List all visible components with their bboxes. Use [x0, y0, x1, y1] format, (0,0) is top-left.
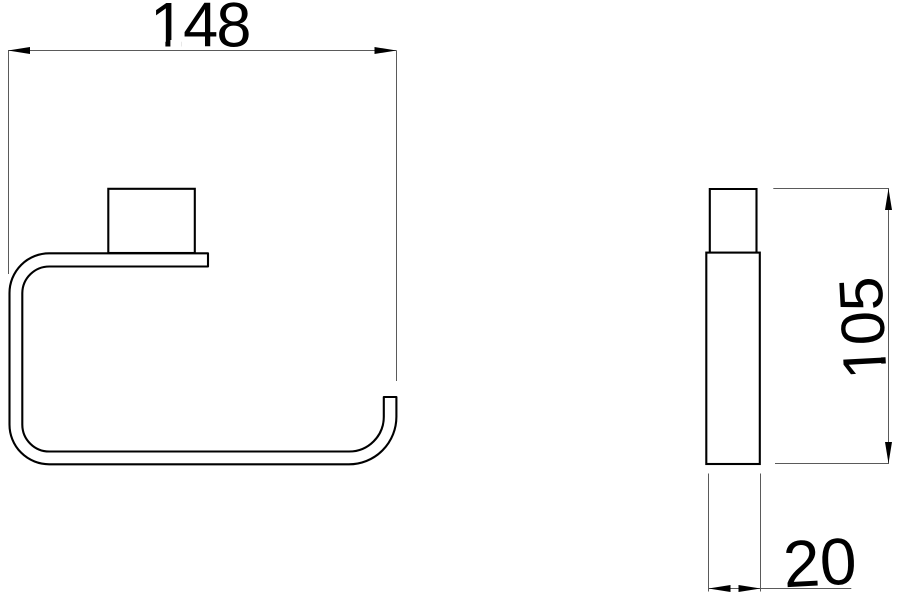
- svg-text:148: 148: [150, 0, 250, 61]
- svg-text:105: 105: [826, 275, 900, 381]
- svg-text:20: 20: [781, 523, 858, 596]
